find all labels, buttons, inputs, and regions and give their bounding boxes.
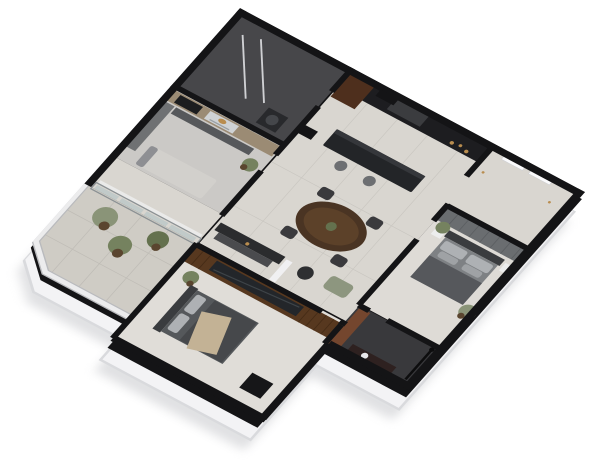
apartment-3d-floorplan xyxy=(0,0,600,464)
floorplan-top xyxy=(0,8,593,464)
